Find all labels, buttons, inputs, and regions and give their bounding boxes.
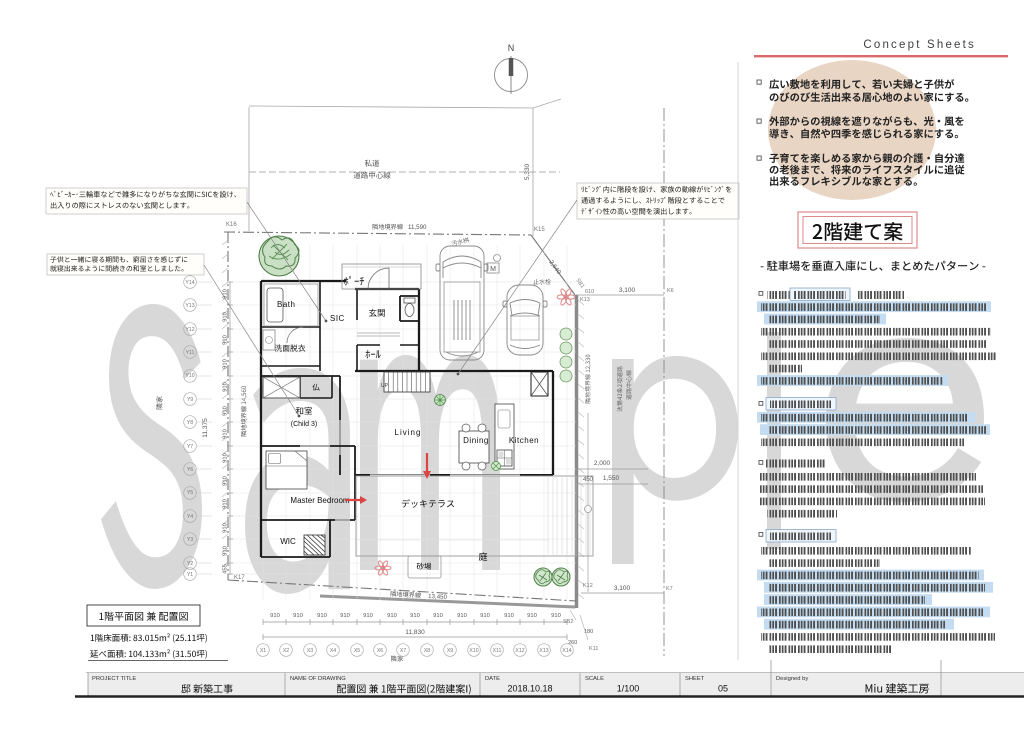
- svg-text:UP: UP: [381, 383, 389, 389]
- svg-text:910: 910: [363, 613, 373, 619]
- svg-text:K11: K11: [589, 646, 598, 652]
- svg-text:X9: X9: [447, 648, 453, 654]
- svg-text:910: 910: [504, 613, 514, 619]
- svg-text:X7: X7: [400, 648, 406, 654]
- svg-text:Bath: Bath: [277, 300, 295, 309]
- svg-text:SHEET: SHEET: [685, 676, 705, 682]
- svg-text:910: 910: [480, 613, 490, 619]
- svg-text:Y13: Y13: [185, 303, 194, 309]
- svg-text:910: 910: [410, 613, 420, 619]
- svg-text:WIC: WIC: [280, 537, 296, 546]
- svg-text:05: 05: [718, 684, 728, 694]
- svg-text:2,640: 2,640: [547, 259, 562, 276]
- svg-text:3,100: 3,100: [614, 585, 631, 592]
- svg-text:455: 455: [223, 564, 229, 574]
- svg-text:X14: X14: [562, 648, 571, 654]
- svg-text:11,830: 11,830: [405, 629, 425, 636]
- svg-text:Y11: Y11: [186, 350, 195, 356]
- svg-text:Master Bedroom: Master Bedroom: [290, 496, 349, 505]
- svg-text:X8: X8: [424, 648, 430, 654]
- svg-text:910: 910: [223, 289, 229, 299]
- svg-text:X3: X3: [307, 648, 313, 654]
- svg-text:1/100: 1/100: [617, 684, 640, 694]
- svg-text:910: 910: [223, 382, 229, 392]
- svg-text:K6: K6: [667, 288, 674, 294]
- svg-text:X2: X2: [283, 648, 289, 654]
- svg-text:Y2: Y2: [187, 561, 193, 567]
- svg-text:X4: X4: [330, 648, 336, 654]
- svg-text:K7: K7: [666, 586, 673, 592]
- svg-text:910: 910: [457, 613, 467, 619]
- svg-text:Y1: Y1: [187, 572, 193, 578]
- svg-text:910: 910: [270, 613, 280, 619]
- svg-text:260: 260: [568, 640, 577, 646]
- svg-text:X12: X12: [515, 648, 524, 654]
- svg-text:K16: K16: [226, 222, 237, 228]
- svg-text:910: 910: [223, 476, 229, 486]
- svg-text:910: 910: [223, 499, 229, 509]
- svg-text:X13: X13: [539, 648, 548, 654]
- svg-text:910: 910: [223, 546, 229, 556]
- svg-text:11,590: 11,590: [408, 224, 427, 231]
- svg-text:Designed by: Designed by: [776, 676, 808, 682]
- svg-text:SB1: SB1: [574, 278, 585, 290]
- svg-text:Y8: Y8: [187, 420, 193, 426]
- svg-text:X1: X1: [260, 648, 266, 654]
- svg-text:M: M: [490, 266, 496, 273]
- svg-text:X5: X5: [354, 648, 360, 654]
- svg-text:K15: K15: [534, 227, 545, 233]
- svg-text:Y12: Y12: [185, 327, 194, 333]
- svg-text:3,100: 3,100: [619, 287, 636, 294]
- svg-text:SCALE: SCALE: [585, 676, 604, 682]
- svg-text:910: 910: [223, 523, 229, 533]
- svg-text:910: 910: [551, 613, 561, 619]
- svg-text:Y3: Y3: [187, 537, 193, 543]
- svg-text:(Child 3): (Child 3): [291, 421, 317, 428]
- svg-text:Living: Living: [395, 428, 422, 437]
- svg-text:910: 910: [340, 613, 350, 619]
- svg-text:K13: K13: [580, 297, 590, 303]
- svg-text:Dining: Dining: [463, 436, 489, 445]
- svg-text:910: 910: [223, 429, 229, 439]
- svg-text:PROJECT TITLE: PROJECT TITLE: [92, 676, 136, 682]
- svg-text:N: N: [508, 43, 515, 53]
- svg-text:X10: X10: [469, 648, 478, 654]
- svg-text:910: 910: [223, 359, 229, 369]
- svg-text:Y6: Y6: [187, 467, 193, 473]
- svg-text:11,375: 11,375: [202, 418, 209, 438]
- svg-text:610: 610: [585, 289, 594, 295]
- svg-text:Y4: Y4: [187, 514, 193, 520]
- svg-text:910: 910: [223, 312, 229, 322]
- svg-text:X11: X11: [493, 648, 502, 654]
- svg-text:910: 910: [387, 613, 397, 619]
- svg-text:DATE: DATE: [485, 676, 500, 682]
- svg-text:SIC: SIC: [330, 314, 345, 323]
- svg-text:910: 910: [223, 335, 229, 345]
- svg-text:910: 910: [527, 613, 537, 619]
- svg-text:2018.10.18: 2018.10.18: [507, 684, 552, 694]
- svg-text:Y14: Y14: [185, 280, 194, 286]
- svg-text:2,000: 2,000: [594, 460, 611, 467]
- svg-text:Y9: Y9: [187, 397, 193, 403]
- svg-text:K17: K17: [234, 575, 245, 581]
- svg-text:910: 910: [433, 613, 443, 619]
- svg-text:910: 910: [293, 613, 303, 619]
- svg-text:Y7: Y7: [187, 444, 193, 450]
- svg-text:X6: X6: [377, 648, 383, 654]
- svg-text:910: 910: [317, 613, 327, 619]
- svg-text:1,550: 1,550: [603, 475, 620, 482]
- svg-text:Y10: Y10: [185, 373, 194, 379]
- svg-text:Kitchen: Kitchen: [509, 436, 539, 445]
- svg-text:Concept Sheets: Concept Sheets: [863, 39, 976, 51]
- svg-text:K12: K12: [583, 583, 593, 589]
- svg-text:910: 910: [223, 406, 229, 416]
- svg-text:Y5: Y5: [187, 490, 193, 496]
- svg-text:910: 910: [223, 453, 229, 463]
- svg-text:5,330: 5,330: [524, 163, 531, 180]
- svg-text:NAME OF DRAWING: NAME OF DRAWING: [290, 676, 346, 682]
